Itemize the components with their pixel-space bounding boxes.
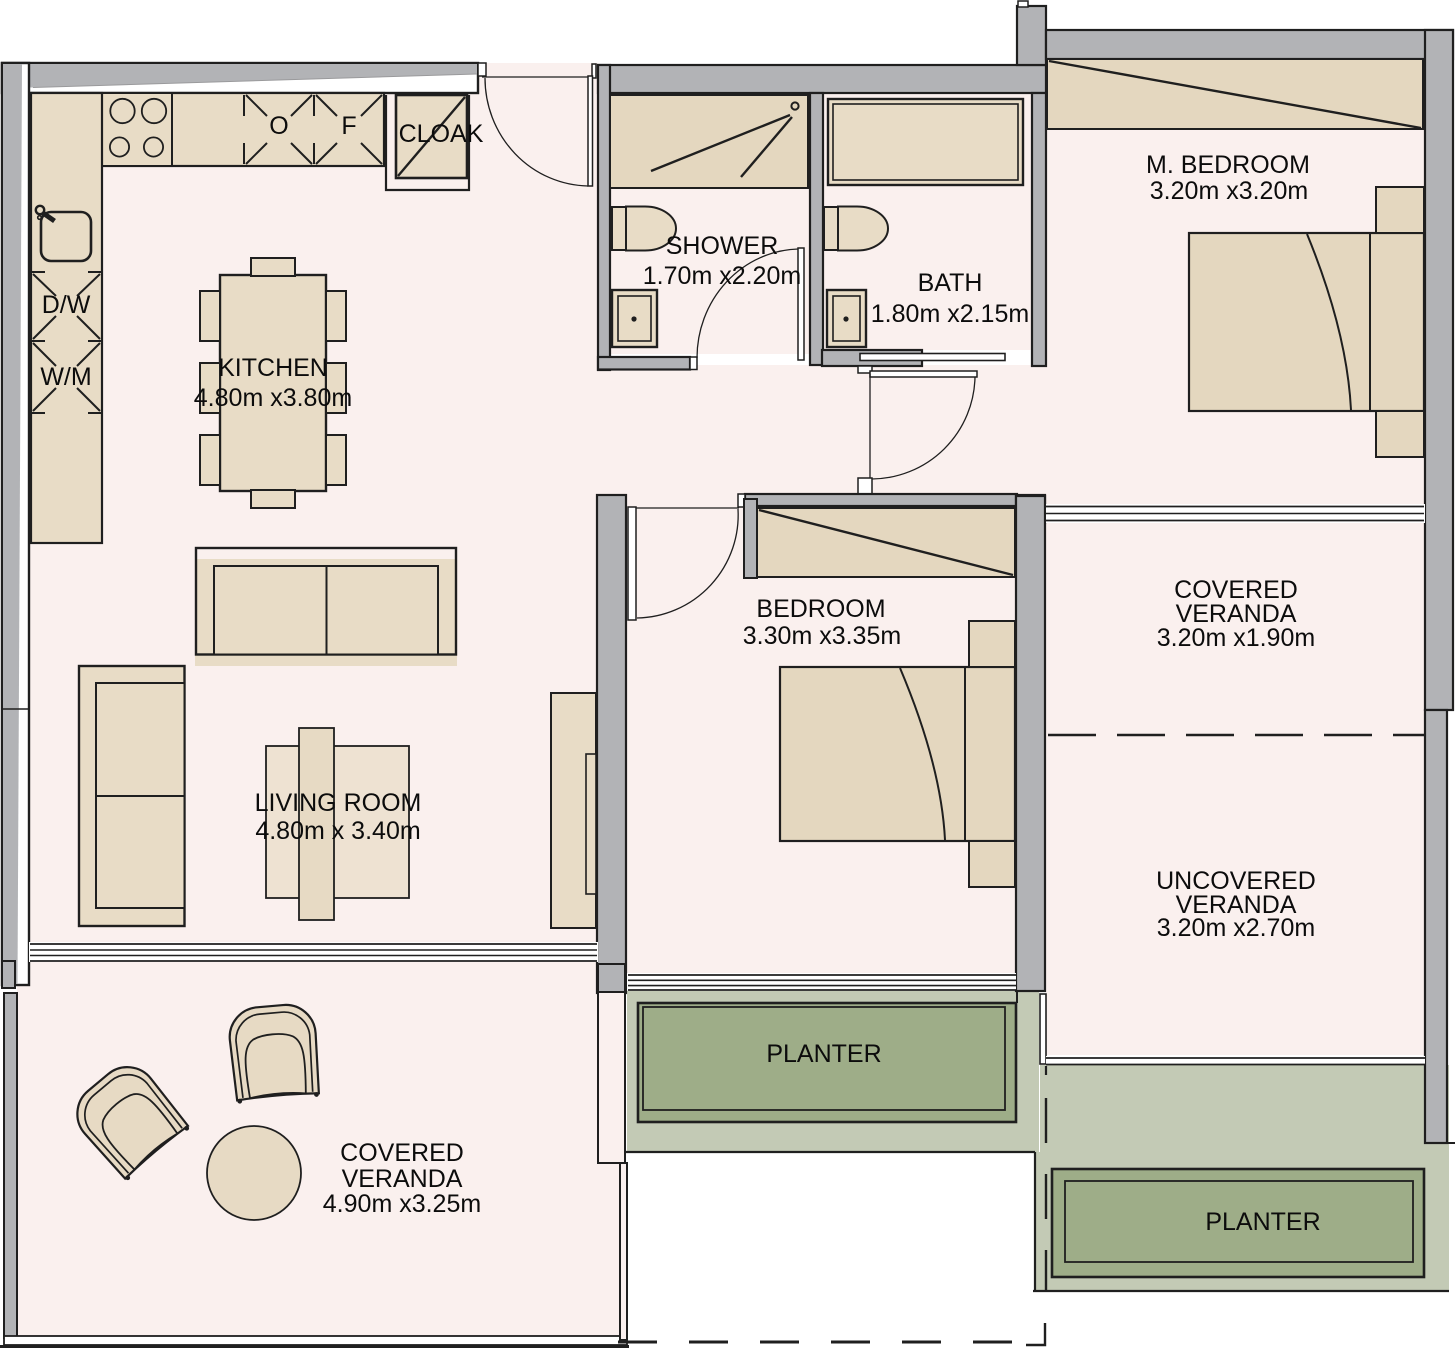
svg-text:4.90m x3.25m: 4.90m x3.25m <box>323 1190 481 1218</box>
svg-text:BEDROOM: BEDROOM <box>756 595 885 623</box>
svg-text:KITCHEN: KITCHEN <box>218 354 328 382</box>
svg-text:O: O <box>269 112 288 140</box>
svg-text:PLANTER: PLANTER <box>1205 1208 1320 1236</box>
svg-text:F: F <box>341 112 356 140</box>
svg-text:W/M: W/M <box>40 363 91 391</box>
svg-text:COVERED: COVERED <box>340 1139 464 1167</box>
svg-text:4.80m x3.80m: 4.80m x3.80m <box>194 384 352 412</box>
svg-text:CLOAK: CLOAK <box>399 120 484 148</box>
svg-text:3.20m x1.90m: 3.20m x1.90m <box>1157 624 1315 652</box>
svg-text:M. BEDROOM: M. BEDROOM <box>1146 151 1310 179</box>
svg-text:4.80m x 3.40m: 4.80m x 3.40m <box>255 817 420 845</box>
svg-text:D/W: D/W <box>42 291 91 319</box>
svg-text:SHOWER: SHOWER <box>666 232 779 260</box>
svg-text:3.20m x2.70m: 3.20m x2.70m <box>1157 914 1315 942</box>
svg-text:VERANDA: VERANDA <box>342 1165 463 1193</box>
svg-text:PLANTER: PLANTER <box>766 1040 881 1068</box>
svg-text:1.80m x2.15m: 1.80m x2.15m <box>871 300 1029 328</box>
svg-text:3.20m x3.20m: 3.20m x3.20m <box>1150 177 1308 205</box>
svg-text:LIVING ROOM: LIVING ROOM <box>255 789 422 817</box>
svg-text:BATH: BATH <box>918 269 983 297</box>
svg-text:3.30m x3.35m: 3.30m x3.35m <box>743 622 901 650</box>
svg-text:1.70m x2.20m: 1.70m x2.20m <box>643 262 801 290</box>
